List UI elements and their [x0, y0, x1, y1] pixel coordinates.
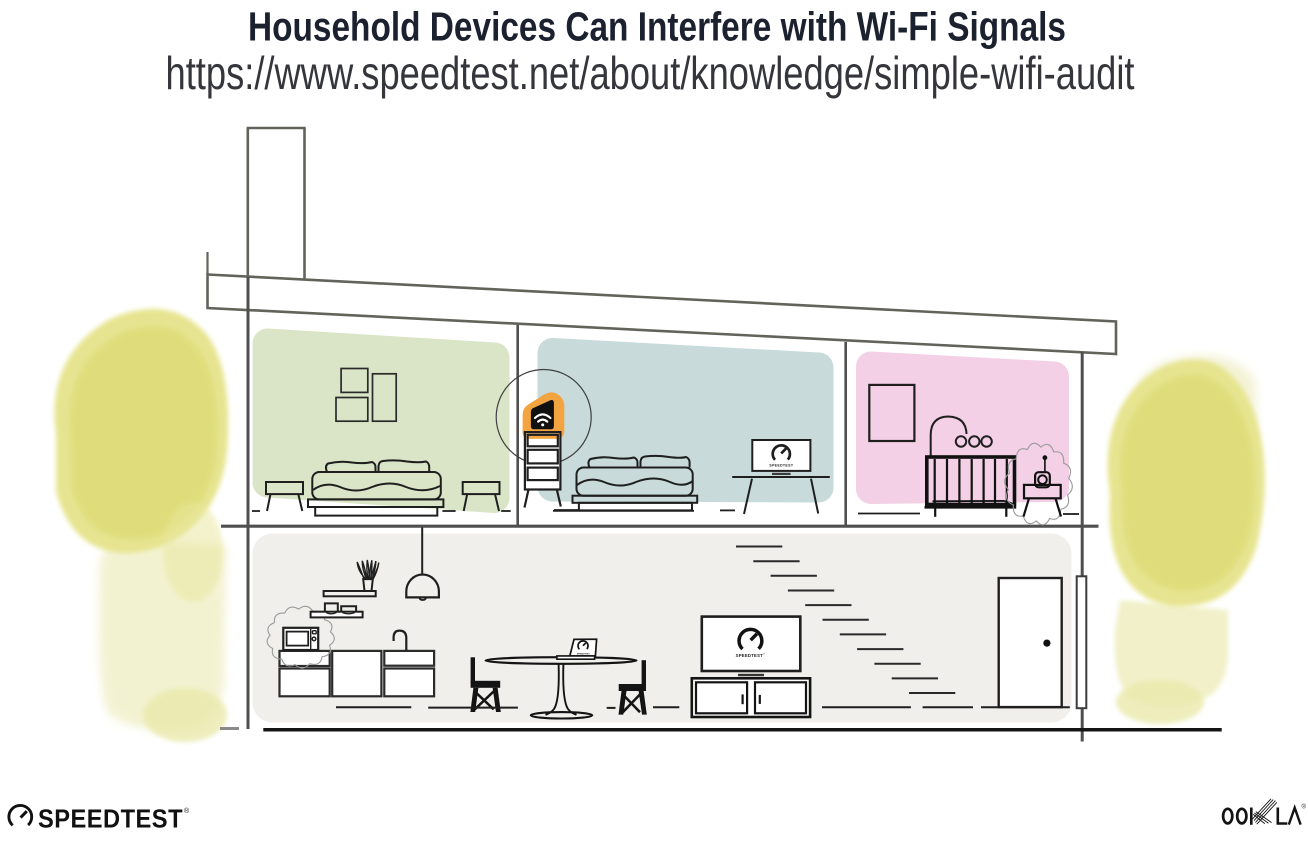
svg-text:®: ® — [1302, 804, 1307, 811]
svg-text:https://www.speedtest.net/abou: https://www.speedtest.net/about/knowledg… — [166, 47, 1135, 99]
svg-text:SPEEDTEST: SPEEDTEST — [577, 653, 591, 655]
svg-text:Household Devices Can Interfer: Household Devices Can Interfere with Wi-… — [248, 4, 1066, 50]
svg-text:SPEEDTEST: SPEEDTEST — [769, 463, 794, 467]
svg-text:®: ® — [184, 807, 190, 815]
svg-text:SPEEDTEST ˚: SPEEDTEST ˚ — [736, 653, 766, 658]
svg-text:SPEEDTEST: SPEEDTEST — [38, 806, 183, 834]
